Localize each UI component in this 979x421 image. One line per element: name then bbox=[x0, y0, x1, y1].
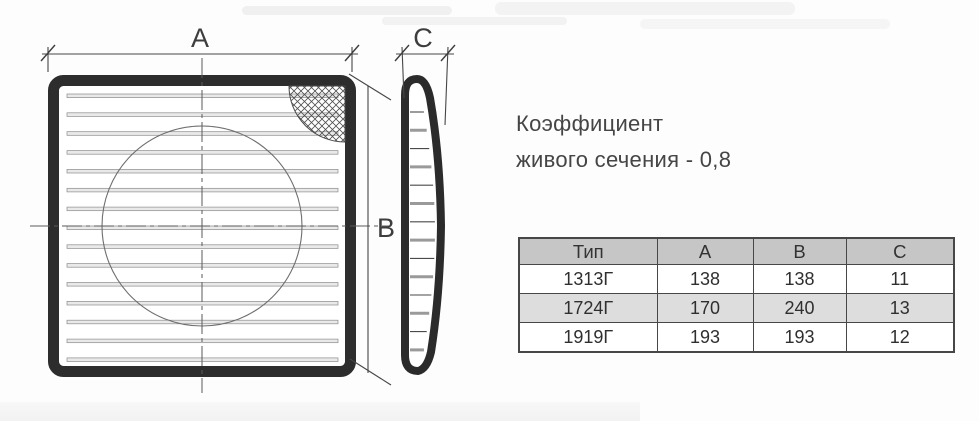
spec-header-c: C bbox=[846, 238, 954, 265]
dim-tick bbox=[350, 359, 391, 385]
scan-artifact bbox=[495, 2, 795, 15]
spec-header-a: A bbox=[657, 238, 753, 265]
dim-label-a: A bbox=[191, 23, 209, 53]
dim-label-c: C bbox=[413, 23, 433, 53]
grille-datasheet: A B C Коэффициент живого сечения - 0,8 bbox=[0, 0, 979, 421]
spec-cell-c: 11 bbox=[846, 265, 954, 294]
spec-cell-a: 138 bbox=[657, 265, 753, 294]
table-row: 1313Г 138 138 11 bbox=[519, 265, 954, 294]
spec-header-type: Тип bbox=[519, 238, 657, 265]
dimension-a: A bbox=[41, 23, 359, 72]
dim-label-b: B bbox=[377, 213, 395, 243]
spec-cell-b: 240 bbox=[753, 294, 846, 323]
spec-cell-b: 193 bbox=[753, 323, 846, 353]
spec-cell-a: 170 bbox=[657, 294, 753, 323]
table-row: 1724Г 170 240 13 bbox=[519, 294, 954, 323]
coefficient-note-line2: живого сечения - 0,8 bbox=[516, 142, 731, 178]
technical-drawing: A B C bbox=[0, 0, 490, 421]
spec-cell-c: 13 bbox=[846, 294, 954, 323]
spec-cell-b: 138 bbox=[753, 265, 846, 294]
side-profile bbox=[405, 79, 441, 371]
scan-artifact bbox=[640, 19, 890, 29]
spec-header-b: B bbox=[753, 238, 846, 265]
spec-cell-type: 1313Г bbox=[519, 265, 657, 294]
spec-table: Тип A B C 1313Г 138 138 11 1724Г 170 240… bbox=[518, 237, 955, 353]
side-view bbox=[405, 79, 441, 371]
front-view bbox=[30, 58, 391, 393]
spec-cell-type: 1919Г bbox=[519, 323, 657, 353]
table-row: 1919Г 193 193 12 bbox=[519, 323, 954, 353]
spec-table-header-row: Тип A B C bbox=[519, 238, 954, 265]
spec-cell-type: 1724Г bbox=[519, 294, 657, 323]
coefficient-note-line1: Коэффициент bbox=[516, 106, 731, 142]
coefficient-note: Коэффициент живого сечения - 0,8 bbox=[516, 106, 731, 178]
spec-cell-a: 193 bbox=[657, 323, 753, 353]
spec-cell-c: 12 bbox=[846, 323, 954, 353]
